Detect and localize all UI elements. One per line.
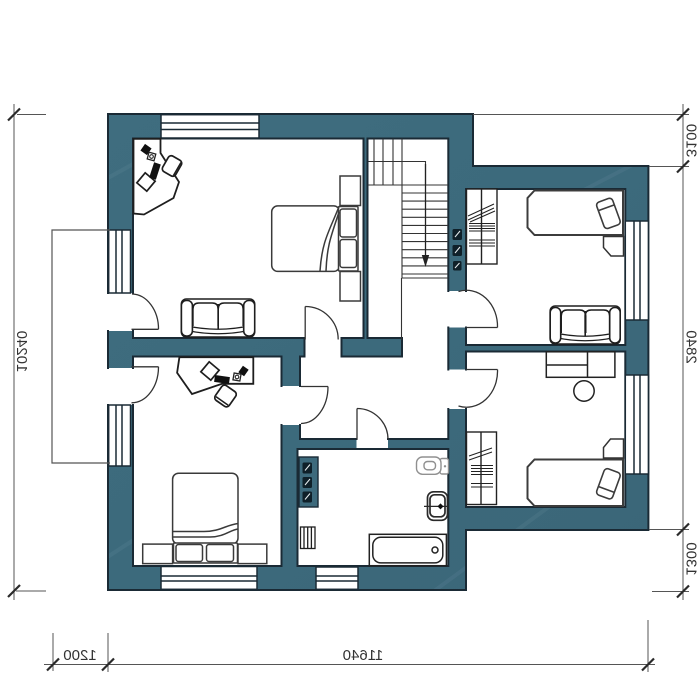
svg-text:10240: 10240 [13,331,30,373]
svg-text:2840: 2840 [683,330,700,363]
svg-text:3100: 3100 [683,124,700,157]
svg-text:1200: 1200 [63,647,96,664]
svg-text:1300: 1300 [683,542,700,575]
svg-text:11640: 11640 [343,647,384,664]
